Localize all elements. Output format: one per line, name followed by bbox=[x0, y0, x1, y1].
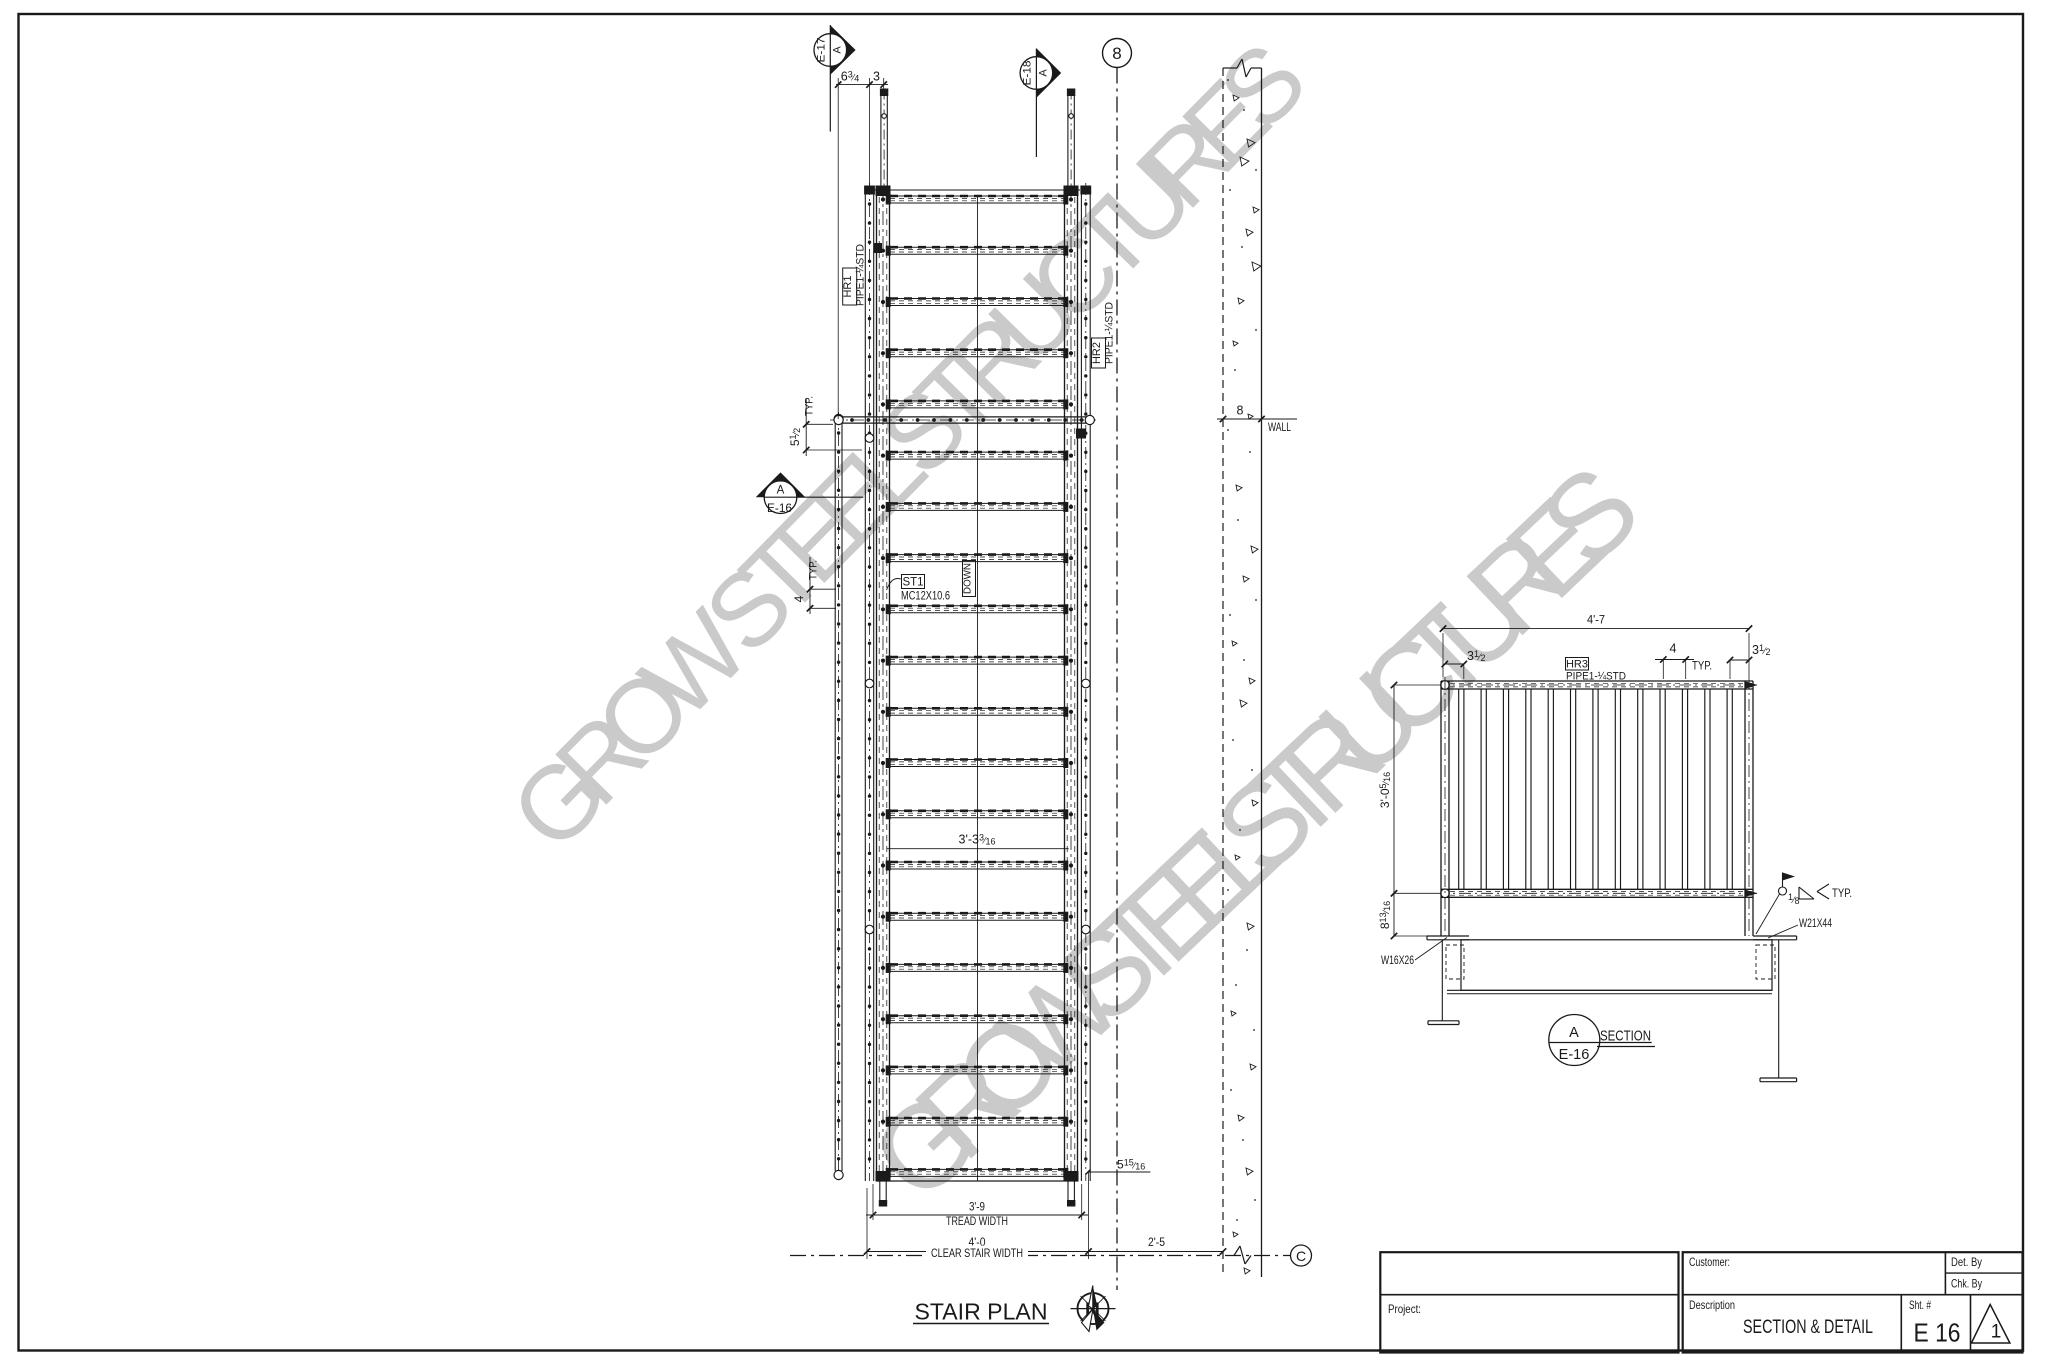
svg-text:SECTION: SECTION bbox=[1600, 1029, 1651, 1045]
svg-text:TREAD WIDTH: TREAD WIDTH bbox=[946, 1214, 1008, 1228]
svg-text:E-16: E-16 bbox=[1559, 1047, 1590, 1063]
svg-text:4'-7: 4'-7 bbox=[1587, 615, 1605, 627]
svg-text:A: A bbox=[777, 485, 785, 497]
svg-text:TYP.: TYP. bbox=[1692, 659, 1712, 673]
svg-text:4: 4 bbox=[1670, 642, 1677, 656]
svg-text:TYP.: TYP. bbox=[808, 560, 820, 580]
svg-text:Sht. #: Sht. # bbox=[1909, 1298, 1931, 1312]
svg-text:HR3: HR3 bbox=[1566, 659, 1588, 671]
svg-text:TYP.: TYP. bbox=[1832, 886, 1852, 900]
svg-text:W21X44: W21X44 bbox=[1799, 918, 1832, 930]
svg-text:Description: Description bbox=[1689, 1298, 1735, 1312]
svg-text:3'-9: 3'-9 bbox=[969, 1202, 985, 1214]
svg-text:1: 1 bbox=[1991, 1322, 2002, 1343]
svg-text:2'-5: 2'-5 bbox=[1148, 1237, 1165, 1249]
svg-text:3: 3 bbox=[873, 70, 880, 84]
svg-text:HR2: HR2 bbox=[1091, 342, 1103, 364]
svg-text:A: A bbox=[1038, 69, 1050, 77]
svg-text:PIPE1-¼STD: PIPE1-¼STD bbox=[1104, 302, 1116, 364]
svg-text:E-16: E-16 bbox=[767, 503, 792, 515]
svg-text:Customer:: Customer: bbox=[1689, 1255, 1730, 1269]
svg-text:Project:: Project: bbox=[1388, 1302, 1421, 1316]
svg-text:A: A bbox=[1569, 1025, 1579, 1041]
svg-text:A: A bbox=[832, 46, 844, 54]
svg-text:MC12X10.6: MC12X10.6 bbox=[901, 591, 950, 603]
svg-text:STAIR PLAN: STAIR PLAN bbox=[915, 1299, 1048, 1325]
svg-text:8: 8 bbox=[1237, 404, 1244, 418]
svg-text:W16X26: W16X26 bbox=[1381, 955, 1414, 967]
svg-text:WALL: WALL bbox=[1268, 420, 1291, 434]
svg-text:CLEAR STAIR WIDTH: CLEAR STAIR WIDTH bbox=[931, 1246, 1023, 1260]
svg-text:E-17: E-17 bbox=[816, 38, 828, 63]
svg-text:8: 8 bbox=[1112, 44, 1121, 63]
svg-text:HR1: HR1 bbox=[842, 275, 854, 297]
svg-text:C: C bbox=[1296, 1248, 1306, 1264]
svg-text:SECTION & DETAIL: SECTION & DETAIL bbox=[1743, 1316, 1873, 1338]
svg-text:E 16: E 16 bbox=[1914, 1318, 1961, 1348]
svg-text:4: 4 bbox=[792, 595, 806, 602]
svg-text:TYP.: TYP. bbox=[804, 396, 816, 416]
svg-text:Chk. By: Chk. By bbox=[1951, 1277, 1982, 1291]
svg-text:Det. By: Det. By bbox=[1951, 1255, 1982, 1269]
svg-text:ST1: ST1 bbox=[902, 577, 923, 589]
svg-text:E-18: E-18 bbox=[1022, 61, 1034, 86]
svg-text:PIPE1-¼STD: PIPE1-¼STD bbox=[855, 244, 867, 306]
svg-text:DOWN: DOWN bbox=[962, 563, 974, 594]
